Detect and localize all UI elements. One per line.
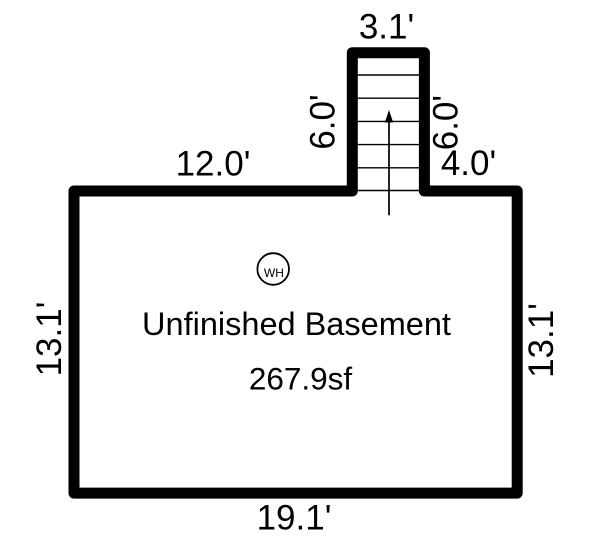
svg-text:Unfinished Basement: Unfinished Basement: [142, 306, 451, 342]
svg-text:WH: WH: [264, 266, 284, 280]
svg-text:13.1': 13.1': [30, 302, 69, 377]
svg-text:6.0': 6.0': [304, 94, 343, 149]
svg-text:3.1': 3.1': [359, 8, 414, 47]
svg-text:6.0': 6.0': [427, 95, 466, 150]
svg-text:13.1': 13.1': [522, 303, 561, 378]
svg-text:19.1': 19.1': [257, 498, 332, 537]
svg-text:267.9sf: 267.9sf: [249, 361, 353, 397]
svg-text:12.0': 12.0': [176, 145, 251, 184]
